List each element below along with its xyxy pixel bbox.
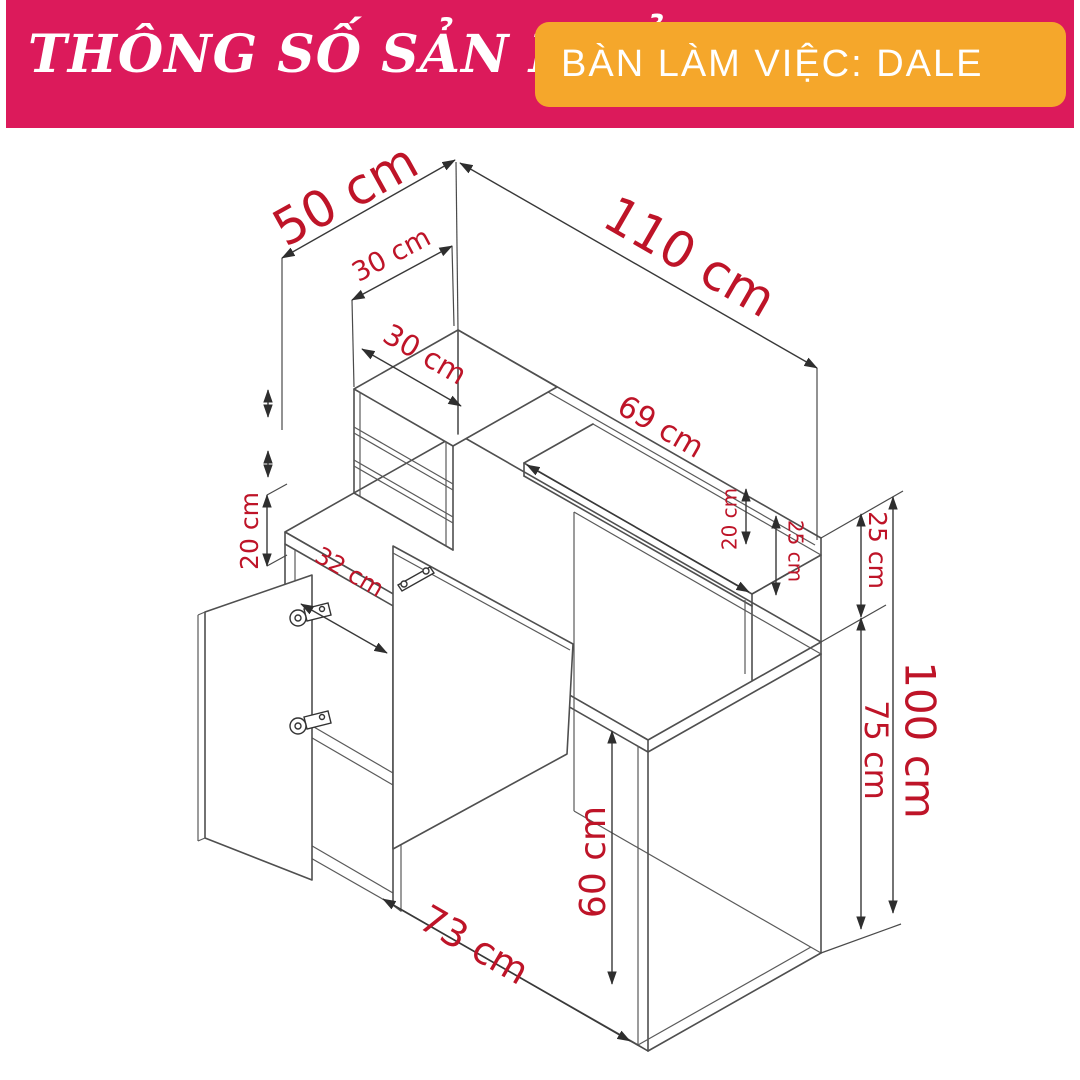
dim-label-75cm: 75 cm — [857, 700, 895, 800]
dim-label-100cm: 100 cm — [896, 661, 945, 819]
dim-label-20cm-left: 20 cm — [235, 492, 264, 570]
product-spec-sheet: THÔNG SỐ SẢN PHẨM BÀN LÀM VIỆC: DALE — [0, 0, 1080, 1080]
dim-label-60cm: 60 cm — [573, 806, 614, 918]
dim-label-25cm-shelf: 25 cm — [784, 520, 808, 582]
dim-label-25cm-hutch: 25 cm — [863, 511, 892, 589]
desk-dimension-diagram: 50 cm 110 cm 30 cm 30 cm 69 cm 20 cm 32 … — [0, 0, 1080, 1080]
dim-label-20cm-right: 20 cm — [718, 488, 742, 550]
dim-label-73cm: 73 cm — [412, 896, 536, 993]
dim-label-69cm: 69 cm — [611, 389, 709, 466]
dim-line-32cm — [301, 604, 387, 653]
